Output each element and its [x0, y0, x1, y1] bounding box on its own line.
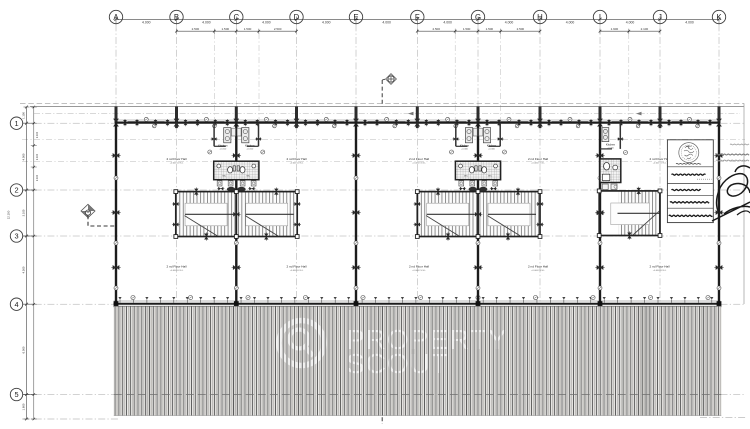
svg-text:+0.000: +0.000 — [461, 149, 469, 151]
svg-text:4.000: 4.000 — [322, 21, 331, 25]
svg-text:+0.000 LV.S.L: +0.000 LV.S.L — [531, 270, 545, 272]
svg-text:4: 4 — [14, 300, 18, 309]
svg-text:Kitchen: Kitchen — [218, 144, 228, 148]
svg-text:A: A — [113, 13, 119, 22]
svg-text:4.000: 4.000 — [566, 21, 575, 25]
svg-text:+0.000 LV.S.L: +0.000 LV.S.L — [531, 163, 545, 165]
svg-text:+0.000: +0.000 — [607, 148, 615, 150]
svg-text:4.000: 4.000 — [382, 21, 391, 25]
svg-text:2 nd Floor Hall: 2 nd Floor Hall — [166, 264, 186, 268]
svg-text:Kitchen: Kitchen — [460, 144, 470, 148]
svg-text:+0.000 LV.S.L: +0.000 LV.S.L — [290, 270, 304, 272]
svg-text:Kitchen: Kitchen — [245, 144, 255, 148]
svg-text:6.000: 6.000 — [21, 346, 25, 353]
svg-text:1.500: 1.500 — [244, 27, 252, 31]
svg-text:4.000: 4.000 — [685, 21, 694, 25]
svg-text:4.000: 4.000 — [505, 21, 514, 25]
svg-text:4.000: 4.000 — [443, 21, 452, 25]
svg-text:4.000: 4.000 — [21, 153, 25, 160]
svg-text:2 nd Floor Hall: 2 nd Floor Hall — [286, 157, 306, 161]
svg-text:3.100: 3.100 — [21, 209, 25, 216]
svg-text:2.100: 2.100 — [36, 153, 39, 160]
svg-text:WC: WC — [488, 176, 492, 178]
svg-text:1.500: 1.500 — [463, 27, 471, 31]
svg-text:2.500: 2.500 — [432, 27, 440, 31]
svg-text:2 nd Floor Hall: 2 nd Floor Hall — [649, 264, 669, 268]
svg-text:2 nd Floor Hall: 2 nd Floor Hall — [166, 157, 186, 161]
svg-text:WC: WC — [222, 176, 226, 178]
svg-text:2 nd Floor Hall: 2 nd Floor Hall — [409, 264, 429, 268]
svg-text:1.600: 1.600 — [21, 403, 25, 410]
svg-text:WC: WC — [464, 176, 468, 178]
svg-text:WC: WC — [246, 176, 250, 178]
svg-text:1: 1 — [14, 119, 18, 128]
svg-text:2 nd Floor Hall: 2 nd Floor Hall — [286, 264, 306, 268]
svg-text:3: 3 — [14, 232, 18, 241]
svg-text:1.900: 1.900 — [611, 27, 619, 31]
svg-text:+0.000 LV.S.L: +0.000 LV.S.L — [290, 163, 304, 165]
svg-text:2: 2 — [14, 186, 18, 195]
svg-text:+0.000 LV.S.L: +0.000 LV.S.L — [170, 270, 184, 272]
svg-text:Kitchen: Kitchen — [487, 144, 497, 148]
svg-text:1.100: 1.100 — [21, 112, 25, 119]
svg-text:2 nd Floor Hall: 2 nd Floor Hall — [528, 264, 548, 268]
svg-text:2.100: 2.100 — [36, 174, 39, 181]
svg-text:12.100: 12.100 — [7, 210, 11, 219]
svg-text:+0.000: +0.000 — [488, 149, 496, 151]
svg-text:+0.000: +0.000 — [219, 149, 227, 151]
svg-text:2.100: 2.100 — [36, 131, 39, 138]
svg-text:+0.000 LV.S.L: +0.000 LV.S.L — [412, 163, 426, 165]
svg-text:2 nd Floor Hall: 2 nd Floor Hall — [409, 157, 429, 161]
svg-text:4.000: 4.000 — [202, 21, 211, 25]
svg-text:4.500: 4.500 — [21, 266, 25, 273]
svg-text:K: K — [716, 13, 722, 22]
svg-text:+0.000 LV.S.L: +0.000 LV.S.L — [653, 270, 667, 272]
svg-text:1.500: 1.500 — [222, 27, 230, 31]
svg-text:+0.000 LV.S.L: +0.000 LV.S.L — [412, 270, 426, 272]
svg-text:5: 5 — [14, 390, 18, 399]
svg-text:4.000: 4.000 — [262, 21, 271, 25]
svg-text:4.000: 4.000 — [142, 21, 151, 25]
svg-text:2.100: 2.100 — [641, 27, 649, 31]
svg-text:2.500: 2.500 — [517, 27, 525, 31]
svg-text:+0.000 LV.S.L: +0.000 LV.S.L — [170, 163, 184, 165]
svg-text:+0.000 LV.S.L: +0.000 LV.S.L — [653, 163, 667, 165]
svg-text:1.500: 1.500 — [486, 27, 494, 31]
svg-text:2.500: 2.500 — [274, 27, 282, 31]
svg-text:+0.000: +0.000 — [246, 149, 254, 151]
svg-text:Kitchen: Kitchen — [606, 143, 616, 147]
svg-text:4.000: 4.000 — [626, 21, 635, 25]
svg-text:2 nd Floor Hall: 2 nd Floor Hall — [649, 157, 669, 161]
svg-text:2 nd Floor Hall: 2 nd Floor Hall — [528, 157, 548, 161]
svg-text:2.500: 2.500 — [192, 27, 200, 31]
